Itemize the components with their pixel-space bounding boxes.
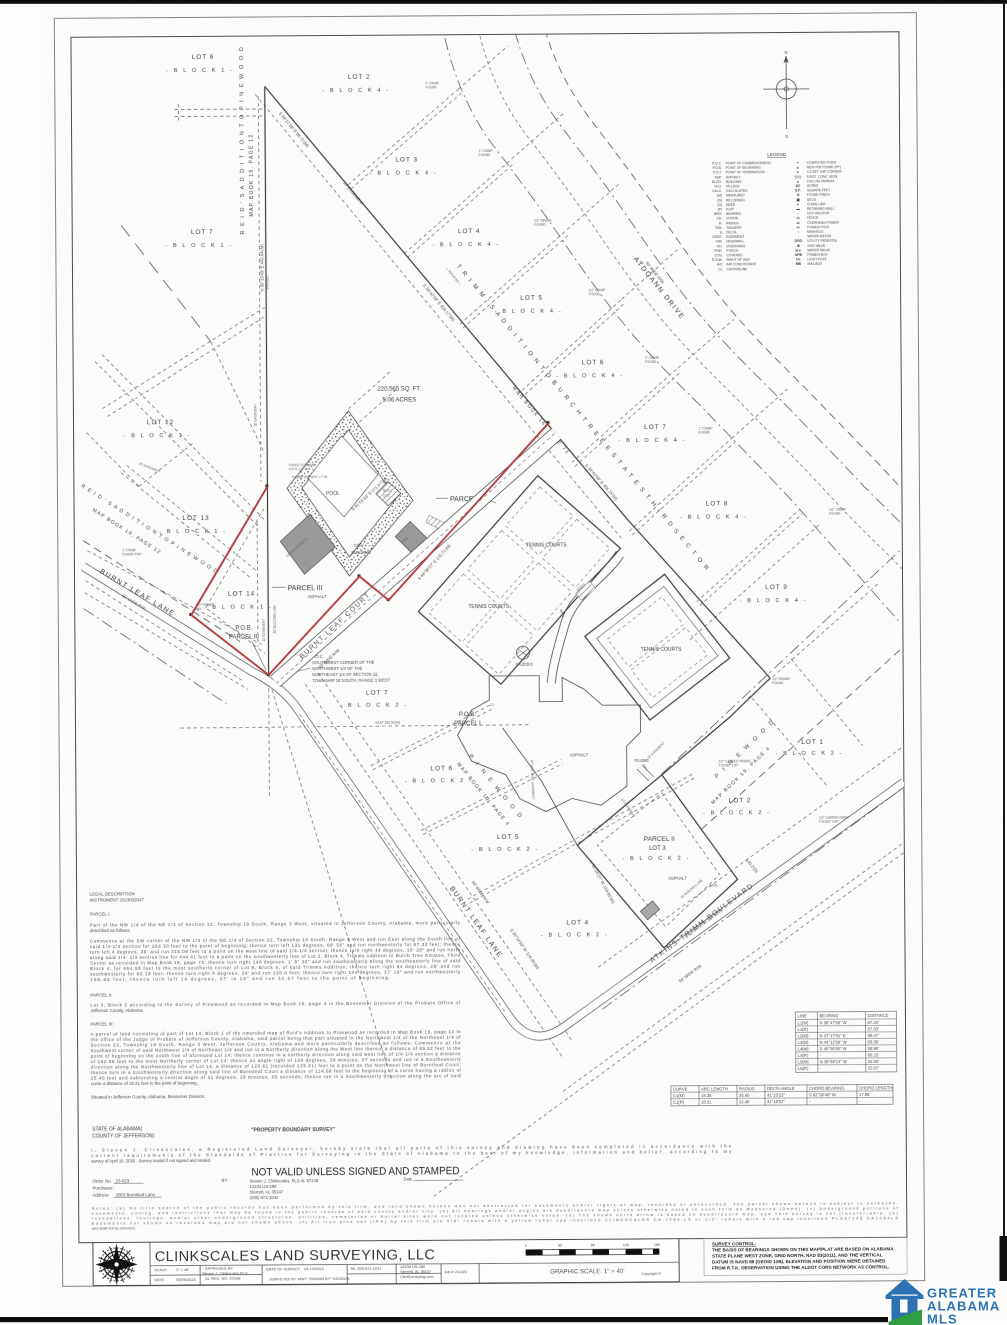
svg-text:MLS: MLS bbox=[927, 1312, 958, 1325]
